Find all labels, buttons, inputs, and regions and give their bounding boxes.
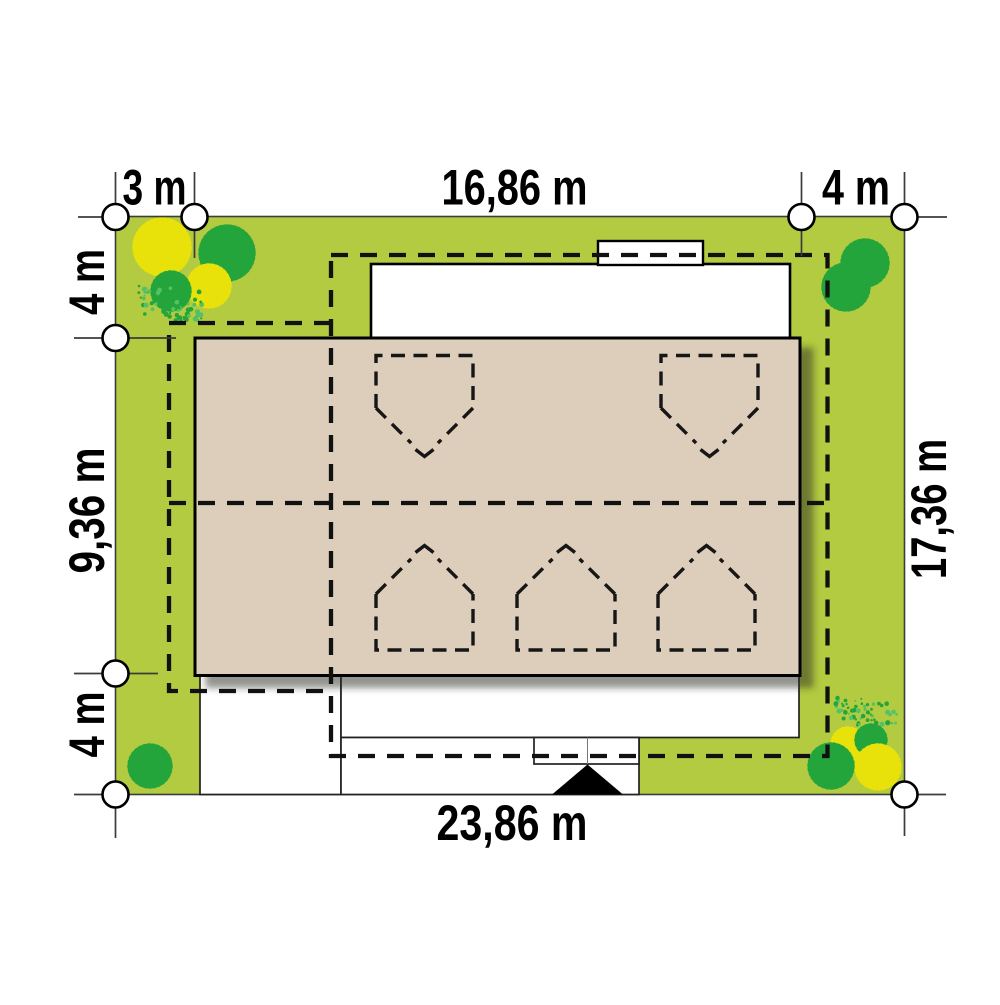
svg-text:4 m: 4 m: [59, 692, 115, 758]
svg-text:16,86 m: 16,86 m: [442, 160, 588, 216]
svg-text:9,36 m: 9,36 m: [59, 448, 115, 574]
svg-text:23,86 m: 23,86 m: [437, 795, 588, 851]
svg-text:3 m: 3 m: [123, 160, 187, 216]
svg-text:4 m: 4 m: [822, 160, 890, 216]
svg-text:4 m: 4 m: [59, 249, 115, 315]
svg-text:17,36 m: 17,36 m: [901, 439, 957, 579]
